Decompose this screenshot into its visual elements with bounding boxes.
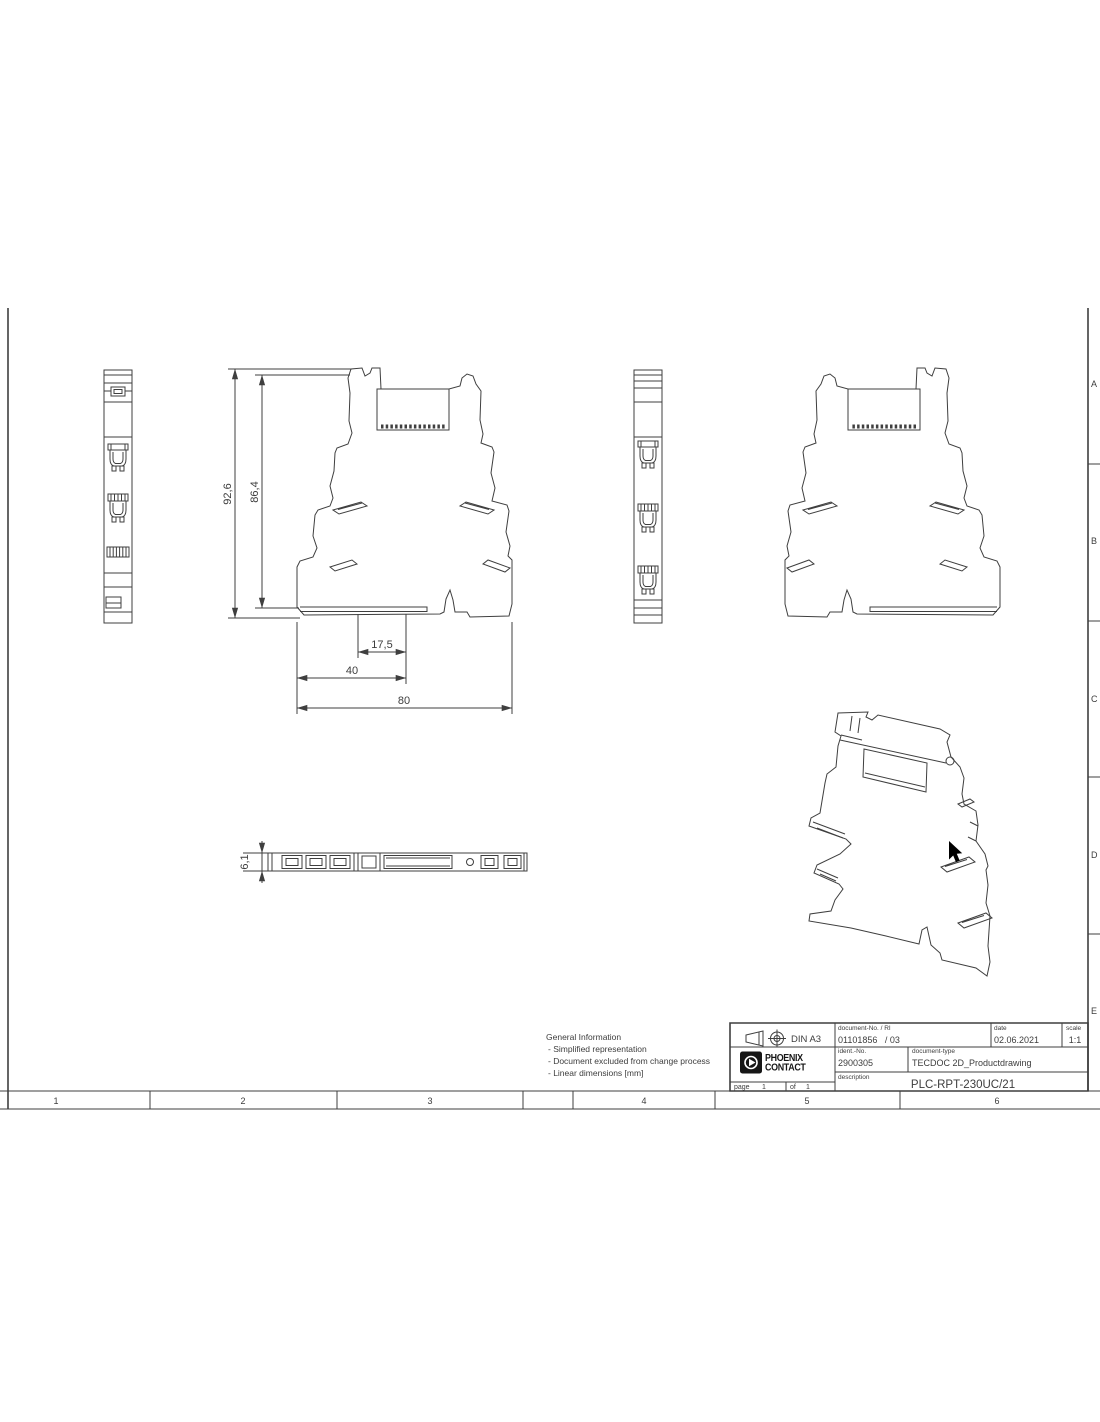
drawing-sheet: A B C D E 1 2 3 4 5 6 <box>0 0 1100 1422</box>
phoenix-logo: PHOENIX CONTACT <box>740 1052 806 1074</box>
description-label: description <box>838 1074 870 1081</box>
logo-text-line2: CONTACT <box>765 1062 806 1074</box>
zone-number-5: 5 <box>804 1096 809 1106</box>
scale-value: 1:1 <box>1069 1035 1082 1045</box>
projection-target-icon <box>768 1030 786 1048</box>
date-value: 02.06.2021 <box>994 1035 1039 1045</box>
dim-offset-width: 17,5 <box>371 639 392 651</box>
zone-letter-d: D <box>1091 850 1098 860</box>
side-view-dimensions: 92,6 86,4 17,5 40 80 <box>222 369 512 714</box>
front-view-2-clamp-2 <box>638 504 658 532</box>
isometric-latch-upper-right <box>958 799 974 807</box>
front-view-1-clamp-1 <box>108 444 128 471</box>
of-value: 1 <box>806 1084 810 1091</box>
document-no-label: document-No. / RI <box>838 1025 891 1032</box>
mouse-cursor <box>949 841 962 862</box>
general-information-item-3: - Linear dimensions [mm] <box>548 1068 643 1078</box>
zone-number-4: 4 <box>641 1096 646 1106</box>
front-view-1-vent-bar <box>107 547 129 557</box>
description-value: PLC-RPT-230UC/21 <box>911 1079 1015 1091</box>
isometric-socket-opening <box>863 749 927 792</box>
dim-body-height: 86,4 <box>249 481 261 502</box>
date-label: date <box>994 1025 1007 1032</box>
dim-thickness: 6,1 <box>239 854 251 869</box>
zone-number-3: 3 <box>427 1096 432 1106</box>
isometric-left-arm-1 <box>813 822 845 838</box>
front-view-1-top-clip <box>104 387 132 396</box>
front-view-2-clamp-1 <box>638 441 658 468</box>
document-no-value: 01101856 / 03 <box>838 1035 900 1045</box>
projection-cone-icon <box>746 1031 763 1046</box>
projection-symbol: DIN A3 <box>746 1030 821 1048</box>
extension-lines <box>228 369 512 714</box>
thickness-dimension: 6,1 <box>239 841 262 883</box>
front-view-1-clamp-2 <box>108 494 128 522</box>
zone-letter-a: A <box>1091 379 1097 389</box>
zone-letter-e: E <box>1091 1006 1097 1016</box>
general-information: General Information - Simplified represe… <box>546 1032 710 1078</box>
dim-rail-width: 40 <box>346 665 358 677</box>
top-view-test-hole <box>467 859 474 866</box>
document-type-label: document-type <box>912 1048 955 1055</box>
front-view-2-body <box>634 370 662 623</box>
zone-strip-dividers <box>150 1091 900 1109</box>
ident-no-value: 2900305 <box>838 1058 873 1068</box>
isometric-test-hole <box>946 757 954 765</box>
paper-standard: DIN A3 <box>791 1034 821 1045</box>
front-view-1-bottom-detail <box>106 597 121 608</box>
page-label: page <box>734 1084 750 1091</box>
isometric-top-face <box>840 740 946 763</box>
zone-number-6: 6 <box>994 1096 999 1106</box>
general-information-title: General Information <box>546 1032 621 1042</box>
scale-label: scale <box>1066 1025 1082 1032</box>
front-view-2-section-lines <box>634 375 662 615</box>
dim-overall-width: 80 <box>398 695 410 707</box>
top-view: 6,1 <box>239 841 527 883</box>
zone-strip-lines <box>0 1091 1100 1109</box>
general-information-item-1: - Simplified representation <box>548 1044 647 1054</box>
side-view-right <box>785 368 1000 617</box>
engineering-drawing: A B C D E 1 2 3 4 5 6 <box>0 0 1100 1422</box>
drawing-frame: A B C D E 1 2 3 4 5 6 <box>0 308 1100 1109</box>
isometric-latch-lower-right <box>958 913 992 928</box>
dim-overall-height: 92,6 <box>222 483 234 504</box>
title-block: DIN A3 document-No. / RI 01101856 / 03 d… <box>730 1023 1088 1091</box>
front-view-2 <box>634 370 662 623</box>
ident-no-label: ident.-No. <box>838 1048 866 1055</box>
front-view-1 <box>104 370 132 623</box>
zone-number-1: 1 <box>53 1096 58 1106</box>
isometric-view <box>809 712 992 976</box>
document-type-value: TECDOC 2D_Productdrawing <box>912 1058 1032 1068</box>
side-view-left <box>297 368 512 617</box>
page-value: 1 <box>762 1084 766 1091</box>
zone-number-2: 2 <box>240 1096 245 1106</box>
isometric-outline <box>809 712 990 976</box>
general-information-item-2: - Document excluded from change process <box>548 1056 710 1066</box>
isometric-clip-detail <box>841 716 862 740</box>
of-label: of <box>790 1084 796 1091</box>
top-view-terminals <box>282 856 521 869</box>
zone-letter-c: C <box>1091 694 1098 704</box>
top-view-relay-body <box>384 856 452 869</box>
zone-letter-b: B <box>1091 536 1097 546</box>
front-view-2-clamp-3 <box>638 566 658 594</box>
